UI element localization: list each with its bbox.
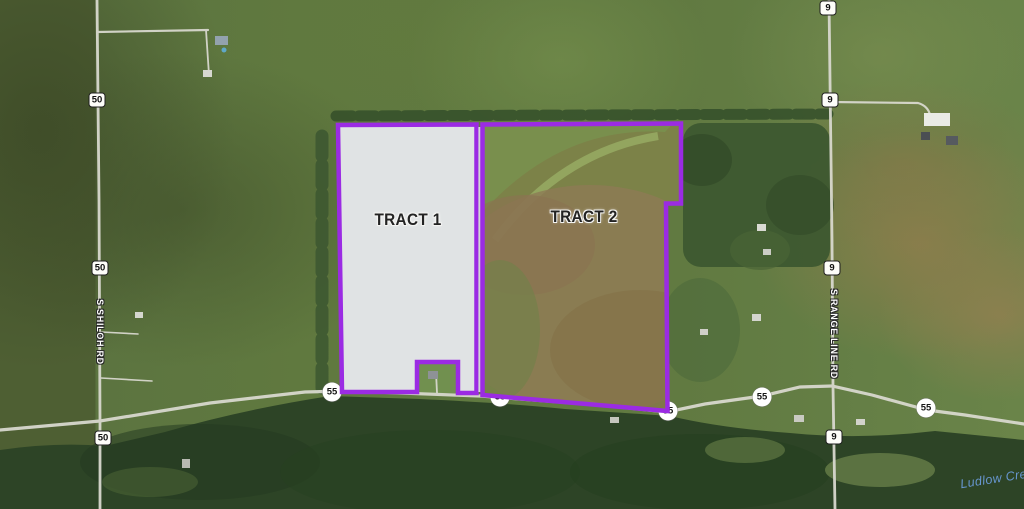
tract2-label: TRACT 2: [550, 207, 617, 227]
shiloh-road-label: S SHILOH RD: [95, 299, 105, 365]
labels-layer: TRACT 1 TRACT 2 S SHILOH RD S RANGE LINE…: [0, 0, 1024, 509]
range-line-road-label: S RANGE LINE RD: [829, 289, 839, 379]
ludlow-creek-label: Ludlow Cre: [959, 467, 1024, 491]
tract1-label: TRACT 1: [374, 210, 441, 230]
aerial-land-tract-map: 50505099995555555555 TRACT 1 TRACT 2 S S…: [0, 0, 1024, 509]
